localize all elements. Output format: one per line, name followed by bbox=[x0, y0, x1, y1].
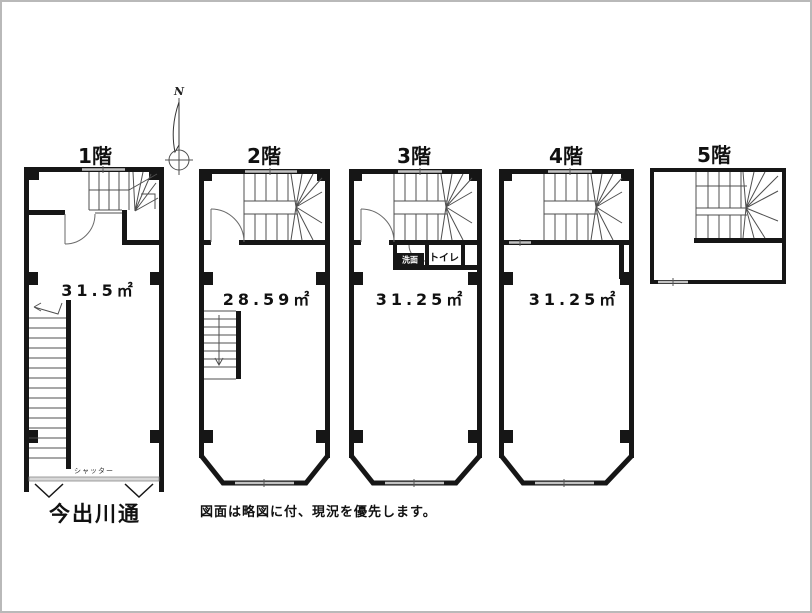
washroom-3f: 洗面 bbox=[396, 253, 424, 265]
floor-label-3f: 3階 bbox=[397, 144, 431, 168]
floor-plan-1f: 1階 シャッター bbox=[24, 144, 164, 497]
floor-label-1f: 1階 bbox=[78, 144, 112, 168]
floor-label-2f: 2階 bbox=[247, 144, 281, 168]
shutter-line bbox=[29, 477, 159, 481]
entry-door-3f bbox=[361, 209, 394, 242]
floor-plan-4f: 4階 31.25㎡ bbox=[499, 144, 634, 487]
stair-direction-arrow-1f bbox=[34, 303, 62, 314]
stairs-upper-5f bbox=[696, 172, 778, 238]
walls-5f bbox=[650, 168, 786, 284]
area-label-3f: 31.25㎡ bbox=[376, 290, 467, 309]
disclaimer-note: 図面は略図に付、現況を優先します。 bbox=[200, 504, 437, 520]
street-label: 今出川通 bbox=[49, 502, 141, 526]
shutter-1f: シャッター bbox=[29, 466, 159, 481]
stair-direction-arrow-2f bbox=[215, 315, 223, 365]
compass-needle-blade bbox=[173, 102, 179, 152]
entrance-marks-1f bbox=[35, 484, 153, 497]
floor-label-4f: 4階 bbox=[549, 144, 583, 168]
area-label-4f: 31.25㎡ bbox=[529, 290, 620, 309]
compass: N bbox=[165, 85, 193, 175]
floor-label-5f: 5階 bbox=[697, 143, 731, 167]
floor-plan-2f: 2階 28.59 bbox=[199, 144, 330, 487]
stairs-lower-2f bbox=[204, 311, 236, 379]
floor-plan-3f: 3階 bbox=[349, 144, 482, 487]
bottom-window-3f bbox=[385, 479, 444, 487]
shutter-label: シャッター bbox=[74, 466, 114, 475]
bottom-window-5f bbox=[658, 278, 688, 286]
washroom-label: 洗面 bbox=[402, 255, 418, 265]
stairs-upper-2f bbox=[244, 174, 322, 240]
bottom-window-2f bbox=[235, 479, 294, 487]
compass-north-label: N bbox=[173, 85, 185, 98]
stairs-upper-4f bbox=[544, 174, 622, 240]
walls-1f bbox=[24, 167, 164, 492]
floor-plan-5f: 5階 bbox=[650, 143, 786, 286]
area-label-1f: 31.5㎡ bbox=[61, 281, 136, 300]
entry-door-1f bbox=[65, 213, 122, 244]
toilet-label: トイレ bbox=[429, 252, 459, 264]
stairs-upper-3f bbox=[394, 174, 472, 240]
bottom-window-4f bbox=[535, 479, 594, 487]
entry-door-2f bbox=[211, 209, 244, 242]
floor-plan-drawing: N 1階 bbox=[2, 2, 812, 613]
stairs-upper-1f bbox=[89, 172, 158, 211]
floor-plan-canvas: N 1階 bbox=[0, 0, 812, 613]
area-label-2f: 28.59㎡ bbox=[223, 290, 314, 309]
